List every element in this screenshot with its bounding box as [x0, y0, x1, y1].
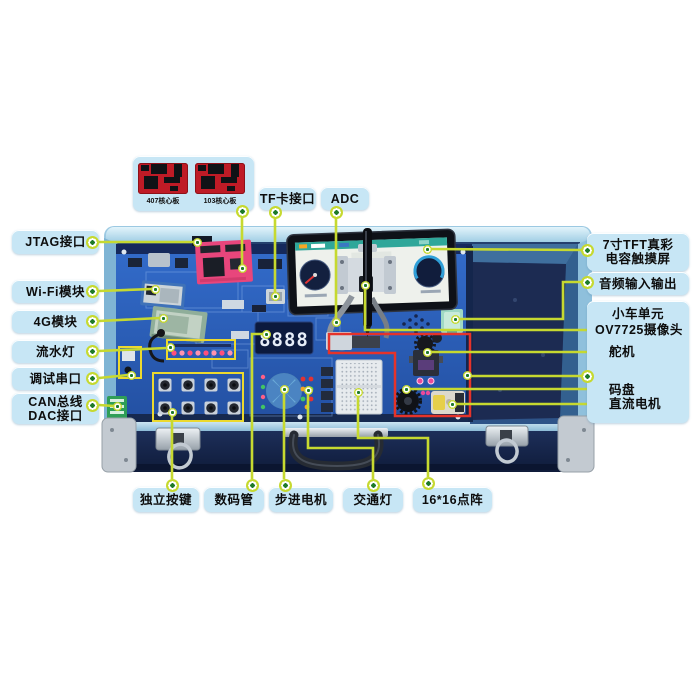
- callout-dot: [166, 479, 179, 492]
- callout-matrix-label: 16*16点阵: [422, 493, 483, 507]
- callout-dot: [86, 345, 99, 358]
- callout-dot: [236, 205, 249, 218]
- callout-led-row-label: 流水灯: [36, 345, 75, 359]
- callout-dot: [269, 206, 282, 219]
- callout-4g-label: 4G模块: [34, 315, 78, 329]
- callout-dot: [581, 276, 594, 289]
- callout-dot: [246, 479, 259, 492]
- callout-dot: [330, 206, 343, 219]
- endpoint-dot: [361, 281, 370, 290]
- callout-traffic-label: 交通灯: [353, 493, 392, 507]
- endpoint-dot: [423, 245, 432, 254]
- endpoint-dot: [402, 385, 411, 394]
- callout-dot: [86, 315, 99, 328]
- endpoint-dot: [451, 315, 460, 324]
- storage-compartment: [470, 244, 578, 424]
- callout-core-boards: 407核心板 103核心板: [133, 156, 254, 211]
- callout-dot: [581, 370, 594, 383]
- callout-dot: [279, 479, 292, 492]
- endpoint-dot: [448, 400, 457, 409]
- endpoint-dot: [463, 371, 472, 380]
- callout-tft-label-2: 电容触摸屏: [605, 252, 670, 266]
- callout-tft-label-1: 7寸TFT真彩: [603, 238, 674, 252]
- callout-audio-label: 音频输入输出: [599, 277, 677, 291]
- callout-dot: [367, 479, 380, 492]
- callout-jtag-label: JTAG接口: [25, 235, 85, 249]
- callout-keys: 独立按键: [133, 487, 199, 512]
- core-board-407-caption: 407核心板: [138, 195, 188, 209]
- callout-dot: [422, 477, 435, 490]
- corner-bracket-left: [102, 418, 136, 472]
- endpoint-dot: [304, 386, 313, 395]
- callout-dot: [86, 236, 99, 249]
- callout-audio: 音频输入输出: [587, 272, 689, 295]
- endpoint-dot: [238, 264, 247, 273]
- endpoint-dot: [168, 408, 177, 417]
- callout-stepper: 步进电机: [269, 487, 333, 512]
- callout-dot: [86, 399, 99, 412]
- corner-bracket-right: [558, 416, 594, 472]
- callout-keys-label: 独立按键: [140, 493, 192, 507]
- callout-seven-seg-label: 数码管: [214, 493, 253, 507]
- wifi-module: [140, 280, 186, 309]
- callout-can-label: CAN总线: [28, 395, 83, 409]
- callout-matrix: 16*16点阵: [413, 487, 492, 512]
- callout-car-unit: 小车单元 OV7725摄像头 舵机 码盘 直流电机: [587, 301, 689, 423]
- dot-matrix-breadboard: [321, 360, 382, 414]
- core-board-407-image: [138, 163, 188, 194]
- callout-camera-label: OV7725摄像头: [595, 323, 683, 337]
- callout-dot: [86, 285, 99, 298]
- endpoint-dot: [423, 348, 432, 357]
- callout-dac-label: DAC接口: [28, 409, 83, 423]
- callout-servo-label: 舵机: [609, 345, 635, 359]
- callout-dot: [86, 372, 99, 385]
- callout-encoder-label: 码盘: [609, 383, 635, 397]
- endpoint-dot: [127, 371, 136, 380]
- endpoint-dot: [280, 385, 289, 394]
- callout-dc-motor-label: 直流电机: [609, 397, 661, 411]
- callout-dot: [581, 244, 594, 257]
- callout-stepper-label: 步进电机: [275, 493, 327, 507]
- callout-wifi-label: Wi-Fi模块: [26, 285, 85, 299]
- annotated-device-diagram: 8888: [0, 0, 700, 700]
- endpoint-dot: [193, 238, 202, 247]
- callout-adc: ADC: [321, 187, 369, 210]
- callout-tf-card: TF卡接口: [259, 187, 316, 210]
- endpoint-dot: [354, 388, 363, 397]
- callout-car-title: 小车单元: [587, 307, 689, 321]
- callout-serial-label: 调试串口: [29, 372, 81, 386]
- callout-adc-label: ADC: [331, 192, 360, 206]
- callout-tf-label: TF卡接口: [260, 192, 315, 206]
- endpoint-dot: [113, 402, 122, 411]
- endpoint-dot: [166, 343, 175, 352]
- endpoint-dot: [262, 330, 271, 339]
- core-board-module: [195, 240, 253, 285]
- core-board-103-image: [195, 163, 245, 194]
- endpoint-dot: [271, 292, 280, 301]
- endpoint-dot: [151, 285, 160, 294]
- endpoint-dot: [159, 314, 168, 323]
- endpoint-dot: [332, 318, 341, 327]
- callout-tft-screen: 7寸TFT真彩 电容触摸屏: [587, 233, 689, 271]
